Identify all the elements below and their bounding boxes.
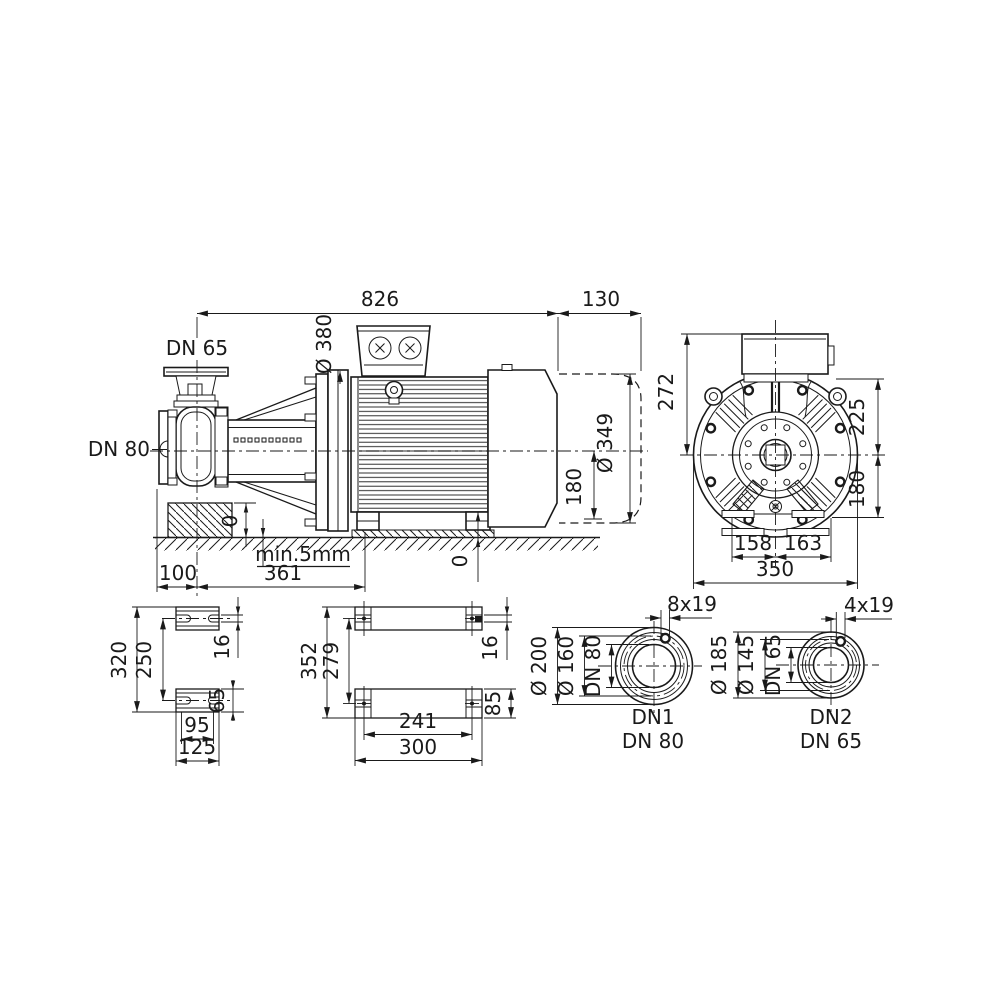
dim-241-label: 241 xyxy=(399,709,437,733)
pump-dimensional-drawing: 826 130 DN 65 DN 80 Ø 380 Ø 349 180 0 0 … xyxy=(0,0,1000,1000)
dim-zero-foot-label: 0 xyxy=(448,555,472,568)
dim-95-label: 95 xyxy=(184,713,209,737)
lifting-eye xyxy=(386,382,403,399)
dim-65-label: 65 xyxy=(205,688,229,713)
discharge-dn65-label: DN 65 xyxy=(166,336,228,360)
dn1-caption-size: DN 80 xyxy=(622,729,684,753)
ground-hatch xyxy=(155,538,598,551)
dn2-caption: DN2 xyxy=(809,705,852,729)
dim-zero-pedestal-label: 0 xyxy=(218,515,242,528)
dn2-caption-size: DN 65 xyxy=(800,729,862,753)
dim-272-label: 272 xyxy=(654,373,678,411)
dn2-bolt-hole xyxy=(836,637,845,646)
dim-163-label: 163 xyxy=(784,531,822,555)
dim-250-label: 250 xyxy=(132,641,156,679)
dn2-outer-label: Ø 185 xyxy=(707,635,731,695)
dn2-bore-label: DN 65 xyxy=(761,634,785,696)
dim-180-side-label: 180 xyxy=(562,468,586,506)
dim-320-label: 320 xyxy=(107,641,131,679)
dim-279-label: 279 xyxy=(319,642,343,680)
lifting-lug xyxy=(829,388,846,405)
dim-85-label: 85 xyxy=(481,691,505,716)
foot-plate xyxy=(792,511,824,518)
dn1-bore-label: DN 80 xyxy=(581,635,605,697)
dim-826-label: 826 xyxy=(361,287,399,311)
dn1-outer-label: Ø 200 xyxy=(527,636,551,696)
dn2-bolt-circle-label: Ø 145 xyxy=(734,635,758,695)
casing-adapter xyxy=(215,407,228,487)
fan-cowl xyxy=(488,370,557,527)
foot-plate xyxy=(722,511,754,518)
dn1-holes-label: 8x19 xyxy=(667,592,717,616)
dim-130-label: 130 xyxy=(582,287,620,311)
dim-349-label: Ø 349 xyxy=(593,413,617,473)
suction-dn80-label: DN 80 xyxy=(88,437,150,461)
dn2-holes-label: 4x19 xyxy=(844,593,894,617)
dn1-bolt-circle-label: Ø 160 xyxy=(554,636,578,696)
pump-foot-plan: 320 250 16 65 95 125 xyxy=(107,597,244,766)
dim-158-label: 158 xyxy=(734,531,772,555)
flange-dn2-view: 4x19 Ø 185 Ø 145 DN 65 DN2 DN 65 xyxy=(707,593,894,753)
dim-100-label: 100 xyxy=(159,561,197,585)
dim-350-label: 350 xyxy=(756,557,794,581)
motor-fins xyxy=(359,379,487,510)
dim-361-label: 361 xyxy=(264,561,302,585)
motor-foot-plan: 352 279 16 85 241 300 xyxy=(297,597,516,766)
dn1-caption: DN1 xyxy=(631,705,674,729)
dim-16-pump-label: 16 xyxy=(210,634,234,659)
dim-300-label: 300 xyxy=(399,735,437,759)
dim-380-label: Ø 380 xyxy=(312,314,336,374)
dim-125-label: 125 xyxy=(178,735,216,759)
end-view: 272 225 180 158 163 350 xyxy=(654,320,886,589)
terminal-box-front xyxy=(742,334,828,374)
dim-180-end-label: 180 xyxy=(845,470,869,508)
grout-strip xyxy=(352,530,494,538)
dim-16-motor-label: 16 xyxy=(478,635,502,660)
dn1-bolt-hole xyxy=(661,634,670,643)
page: 826 130 DN 65 DN 80 Ø 380 Ø 349 180 0 0 … xyxy=(0,0,1000,1000)
flange-dn1-view: 8x19 Ø 200 Ø 160 DN 80 DN1 DN 80 xyxy=(527,592,717,753)
dim-352-label: 352 xyxy=(297,642,321,680)
dim-225-label: 225 xyxy=(845,398,869,436)
side-view: 826 130 DN 65 DN 80 Ø 380 Ø 349 180 0 0 … xyxy=(88,287,648,599)
motor-foot-bar xyxy=(355,607,482,630)
lantern-flange xyxy=(316,374,328,530)
lifting-lug xyxy=(705,388,722,405)
